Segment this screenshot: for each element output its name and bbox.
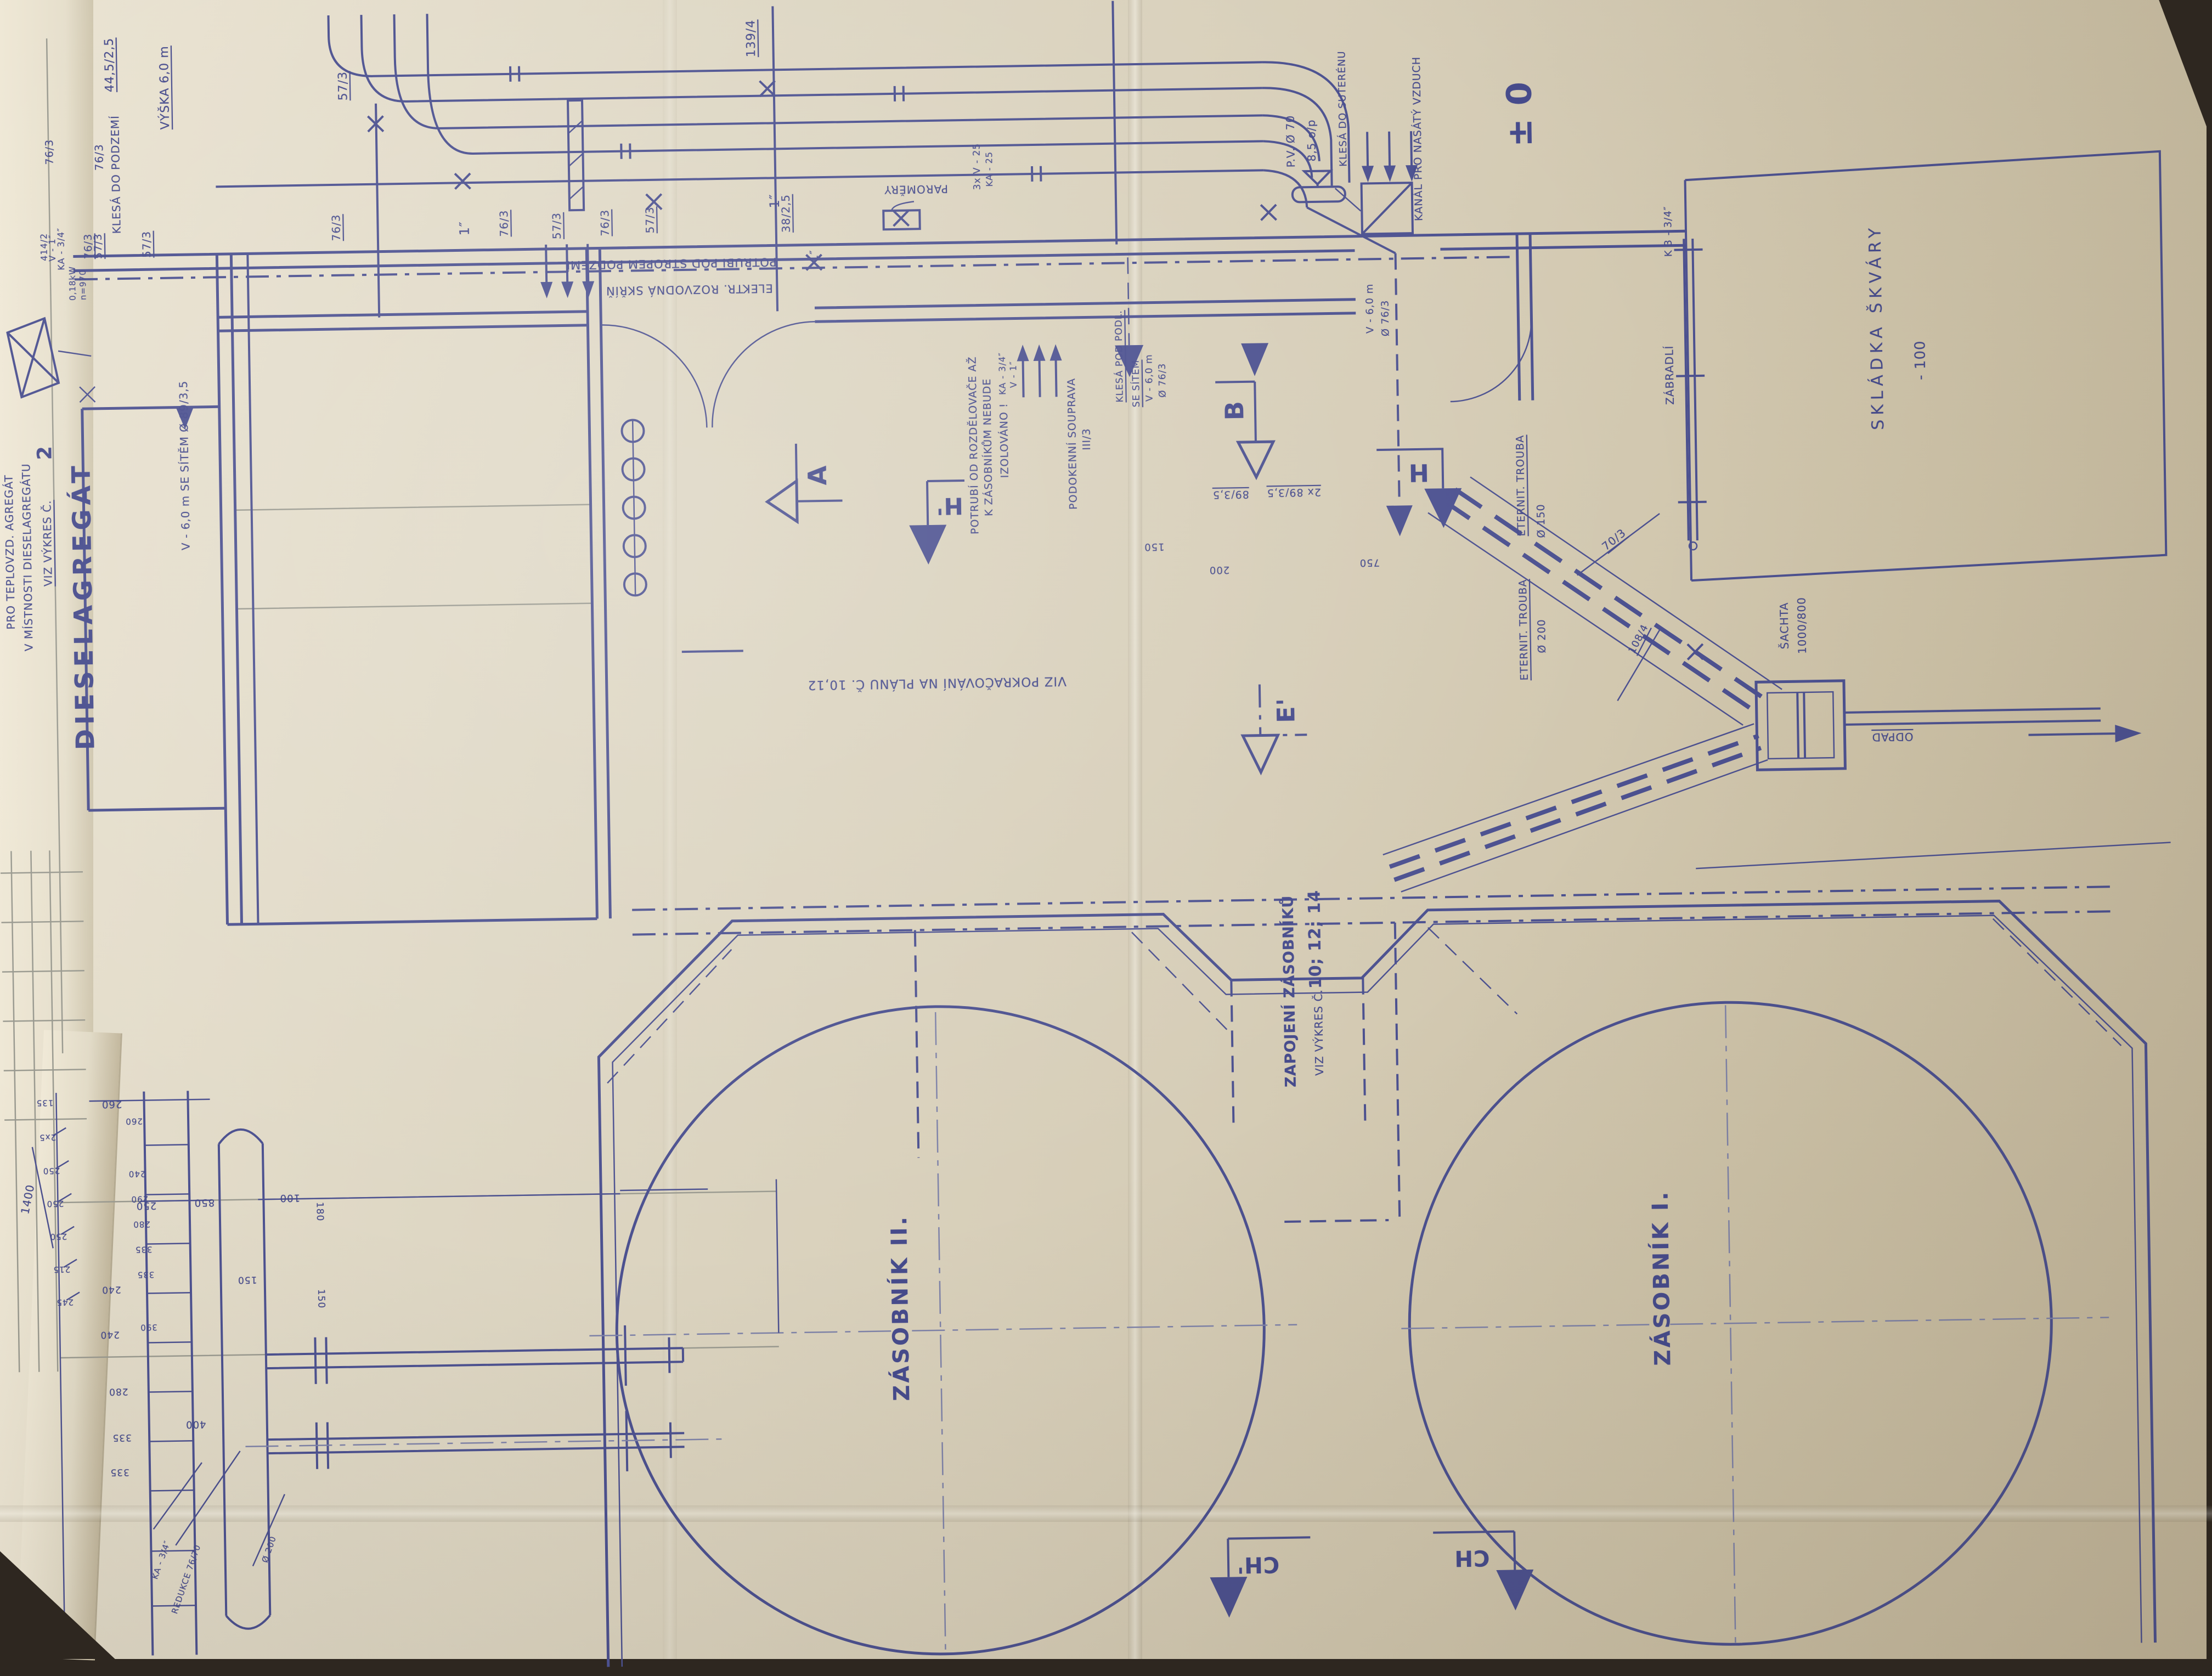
photo-vignette (0, 0, 2212, 1659)
blueprint-photo: { "colors": { "ink": "#4c5190", "paper":… (0, 0, 2212, 1659)
